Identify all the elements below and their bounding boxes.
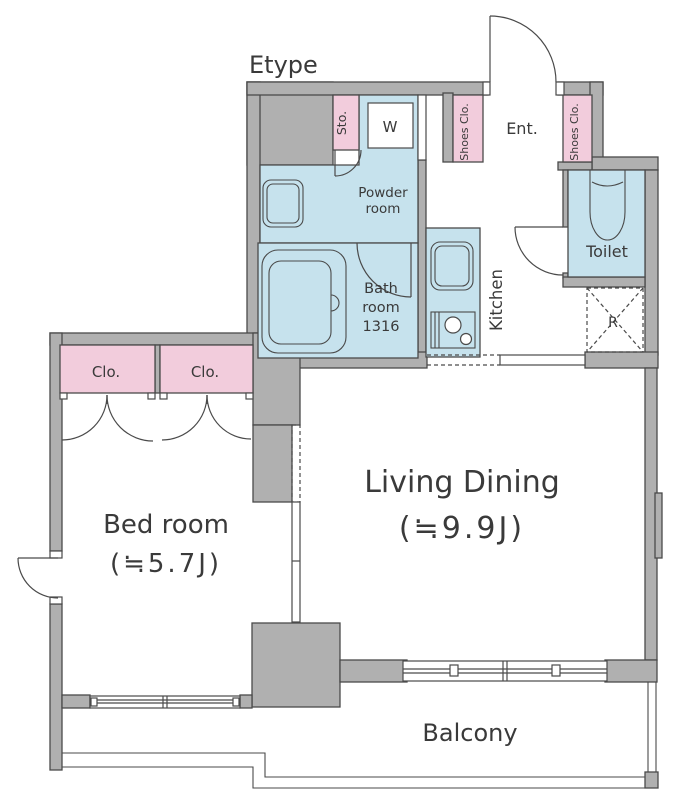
wall-segment — [645, 170, 658, 355]
storage-label: Sto. — [334, 111, 349, 135]
bedroom-window — [90, 696, 240, 708]
powder-room-sliding-door — [418, 95, 426, 160]
wall-segment — [252, 623, 340, 707]
wall-segment — [240, 695, 252, 708]
shoes-closet-right-label: Shoes Clo. — [568, 103, 581, 160]
balcony-label: Balcony — [422, 719, 517, 747]
kitchen-label: Kitchen — [487, 269, 506, 331]
wall-segment — [253, 425, 292, 502]
wall-segment — [50, 604, 62, 770]
closet-doors — [60, 393, 253, 441]
wall-segment — [62, 695, 90, 708]
powder-room-label-line2: room — [366, 201, 401, 217]
shoes-closet-left-label: Shoes Clo. — [458, 103, 471, 160]
wall-segment — [155, 345, 160, 393]
living-name: Living Dining — [364, 465, 560, 500]
bedroom-name: Bed room — [103, 510, 229, 540]
bedroom-living-sliding-door — [292, 425, 300, 622]
bathroom-label-line2: room — [362, 300, 400, 316]
toilet-label: Toilet — [585, 242, 628, 261]
plan-title: Etype — [249, 51, 318, 79]
entrance-door — [483, 16, 564, 95]
refrigerator-label: R — [608, 315, 618, 331]
wall-segment — [50, 333, 267, 345]
bathroom-label-line3: 1316 — [363, 319, 400, 335]
wall-segment — [563, 170, 568, 227]
wall-segment — [418, 160, 426, 358]
bedroom-exterior-door — [18, 551, 62, 604]
burner-small — [461, 334, 472, 345]
closet-left-label: Clo. — [92, 363, 120, 381]
wall-segment — [605, 660, 657, 682]
wall-segment — [558, 162, 592, 170]
entrance-label: Ent. — [506, 119, 538, 138]
wall-segment — [340, 660, 407, 682]
wall-segment — [585, 352, 658, 368]
wall-segment — [563, 277, 645, 287]
living-balcony-window — [403, 661, 607, 681]
living-size: (≒9.9J) — [399, 511, 525, 546]
floor-plan-drawing: Etype Ent. Sto. W Shoes Clo. Shoes Clo. … — [0, 0, 674, 800]
wall-segment — [443, 93, 453, 162]
wall-segment — [592, 157, 658, 170]
washer-label: W — [383, 118, 398, 136]
burner-large — [445, 317, 461, 333]
bathroom-label-line1: Bath — [364, 281, 398, 297]
toilet-door — [515, 227, 563, 275]
powder-room-label-line1: Powder — [358, 185, 408, 201]
wall-segment — [645, 772, 658, 788]
bedroom-size: (≒5.7J) — [110, 549, 222, 579]
wall-segment — [655, 493, 662, 558]
floor-plan: Etype Ent. Sto. W Shoes Clo. Shoes Clo. … — [0, 0, 674, 800]
closet-right-label: Clo. — [191, 363, 219, 381]
